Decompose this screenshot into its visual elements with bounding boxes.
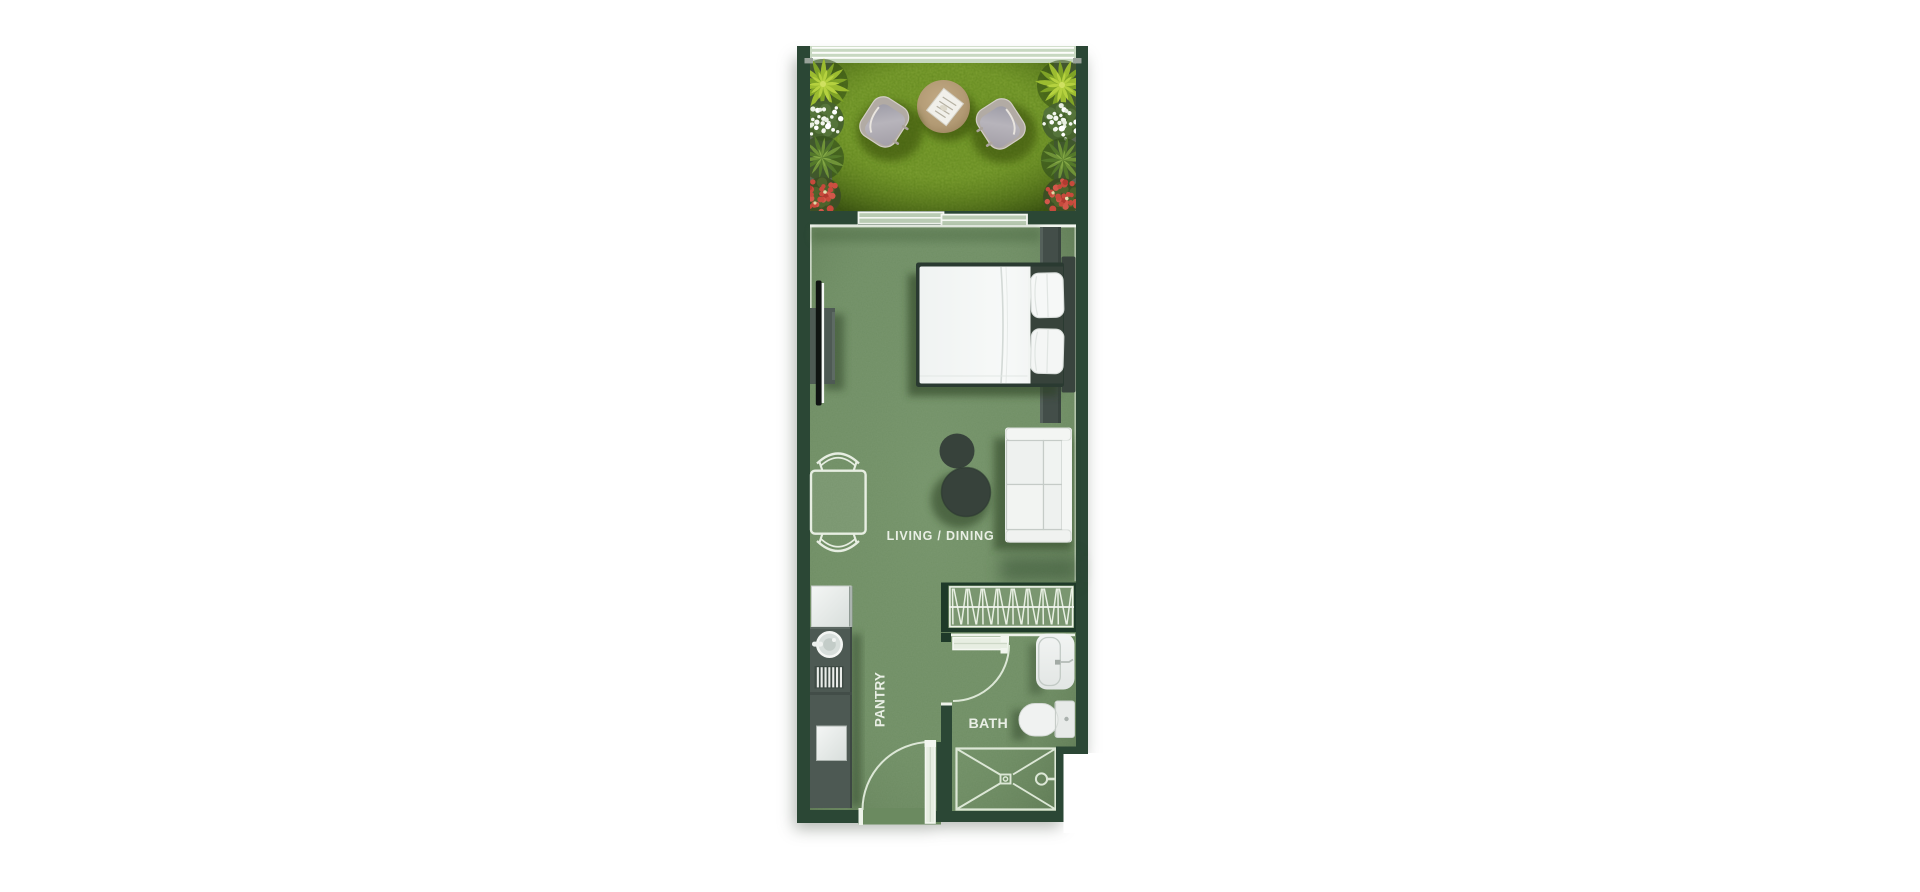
svg-text:LIVING / DINING: LIVING / DINING [887, 529, 995, 543]
svg-text:BATH: BATH [969, 716, 1009, 732]
svg-text:PANTRY: PANTRY [873, 672, 888, 727]
